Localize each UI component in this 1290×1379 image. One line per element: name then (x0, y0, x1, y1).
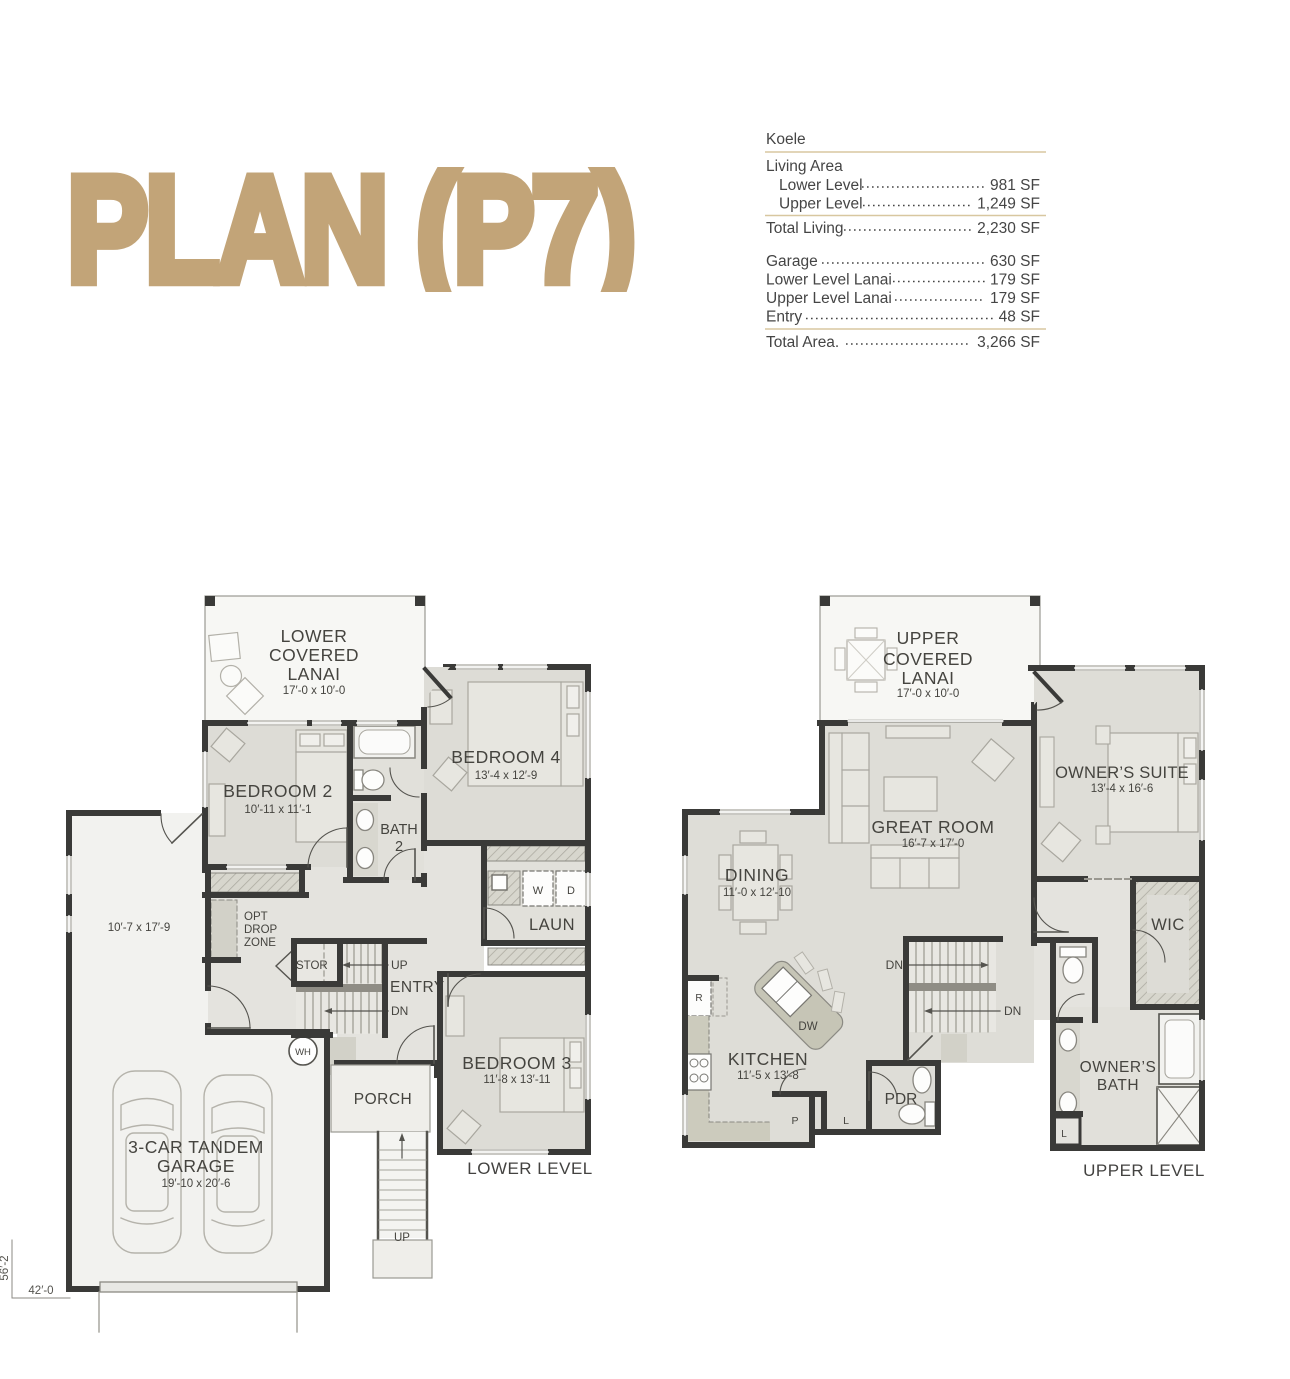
svg-text:W: W (533, 885, 544, 897)
svg-text:OWNER’S SUITE: OWNER’S SUITE (1055, 764, 1189, 782)
svg-text:BEDROOM 2: BEDROOM 2 (223, 781, 333, 801)
svg-text:3-CAR TANDEM: 3-CAR TANDEM (128, 1137, 264, 1157)
svg-text:1,249 SF: 1,249 SF (977, 196, 1040, 213)
svg-text:UP: UP (391, 958, 408, 972)
svg-text:COVERED: COVERED (883, 649, 973, 669)
svg-text:10′-11 x 11′-1: 10′-11 x 11′-1 (244, 804, 311, 816)
svg-text:11′-0 x 12′-10: 11′-0 x 12′-10 (723, 887, 791, 899)
svg-text:UPPER LEVEL: UPPER LEVEL (1083, 1161, 1205, 1180)
svg-text:BATH: BATH (1097, 1077, 1139, 1094)
svg-text:WH: WH (295, 1047, 311, 1058)
svg-text:Upper Level Lanai: Upper Level Lanai (766, 290, 892, 307)
svg-text:10′-7 x 17′-9: 10′-7 x 17′-9 (108, 922, 171, 934)
svg-text:ZONE: ZONE (244, 937, 276, 949)
svg-text:DROP: DROP (244, 924, 278, 936)
svg-text:OWNER’S: OWNER’S (1080, 1059, 1157, 1076)
svg-text:GARAGE: GARAGE (157, 1156, 235, 1176)
svg-text:OPT: OPT (244, 911, 268, 923)
svg-text:2,230 SF: 2,230 SF (977, 220, 1040, 237)
svg-text:Total Living: Total Living (766, 220, 844, 237)
svg-text:UPPER: UPPER (897, 628, 960, 648)
svg-text:179 SF: 179 SF (990, 290, 1040, 307)
svg-text:BEDROOM 3: BEDROOM 3 (462, 1053, 572, 1073)
svg-text:Garage: Garage (766, 253, 818, 270)
svg-text:ENTRY: ENTRY (390, 979, 445, 996)
svg-text:179 SF: 179 SF (990, 272, 1040, 289)
svg-text:L: L (1061, 1129, 1067, 1140)
svg-text:16′-7 x 17′-0: 16′-7 x 17′-0 (902, 838, 965, 850)
svg-text:PLAN (P7): PLAN (P7) (67, 145, 633, 313)
svg-text:P: P (791, 1115, 798, 1127)
svg-text:LOWER LEVEL: LOWER LEVEL (467, 1159, 593, 1178)
svg-text:PORCH: PORCH (354, 1091, 412, 1108)
svg-text:GREAT ROOM: GREAT ROOM (872, 817, 995, 837)
svg-text:630 SF: 630 SF (990, 253, 1040, 270)
svg-text:BATH: BATH (380, 822, 418, 838)
svg-text:Upper Level: Upper Level (779, 196, 863, 213)
svg-text:17′-0 x 10′-0: 17′-0 x 10′-0 (283, 685, 346, 697)
svg-text:DN: DN (886, 958, 903, 972)
svg-text:Entry: Entry (766, 309, 802, 326)
svg-text:COVERED: COVERED (269, 645, 359, 665)
svg-text:KITCHEN: KITCHEN (728, 1049, 808, 1069)
svg-text:981 SF: 981 SF (990, 177, 1040, 194)
svg-text:R: R (695, 993, 702, 1004)
svg-text:17′-0 x 10′-0: 17′-0 x 10′-0 (897, 688, 960, 700)
svg-text:3,266 SF: 3,266 SF (977, 334, 1040, 351)
svg-text:LOWER: LOWER (281, 626, 348, 646)
svg-text:PDR: PDR (885, 1091, 918, 1108)
svg-text:DW: DW (798, 1021, 817, 1033)
svg-text:STOR: STOR (296, 960, 328, 972)
svg-text:11′-8 x 13′-11: 11′-8 x 13′-11 (483, 1074, 550, 1086)
svg-text:13′-4 x 16′-6: 13′-4 x 16′-6 (1091, 783, 1154, 795)
svg-text:56′-2: 56′-2 (0, 1255, 11, 1280)
svg-text:42′-0: 42′-0 (28, 1285, 53, 1297)
svg-text:Total Area.: Total Area. (766, 334, 839, 351)
svg-text:D: D (567, 885, 575, 897)
svg-text:2: 2 (395, 839, 403, 855)
svg-text:LANAI: LANAI (901, 668, 954, 688)
svg-text:UP: UP (394, 1232, 410, 1244)
svg-text:BEDROOM 4: BEDROOM 4 (451, 747, 561, 767)
svg-text:LANAI: LANAI (287, 664, 340, 684)
svg-text:DINING: DINING (725, 865, 789, 885)
svg-text:Koele: Koele (766, 131, 806, 148)
svg-text:19′-10 x 20′-6: 19′-10 x 20′-6 (162, 1178, 231, 1190)
svg-text:13′-4 x 12′-9: 13′-4 x 12′-9 (475, 770, 538, 782)
svg-text:WIC: WIC (1151, 916, 1185, 934)
svg-text:11′-5 x 13′-8: 11′-5 x 13′-8 (737, 1070, 799, 1082)
svg-text:Lower Level Lanai: Lower Level Lanai (766, 272, 892, 289)
svg-text:DN: DN (1004, 1004, 1021, 1018)
svg-text:Lower Level: Lower Level (779, 177, 863, 194)
svg-text:Living Area: Living Area (766, 158, 843, 175)
svg-text:DN: DN (391, 1004, 408, 1018)
svg-text:L: L (843, 1115, 849, 1127)
svg-text:48 SF: 48 SF (999, 309, 1040, 326)
svg-text:LAUN: LAUN (529, 916, 575, 934)
